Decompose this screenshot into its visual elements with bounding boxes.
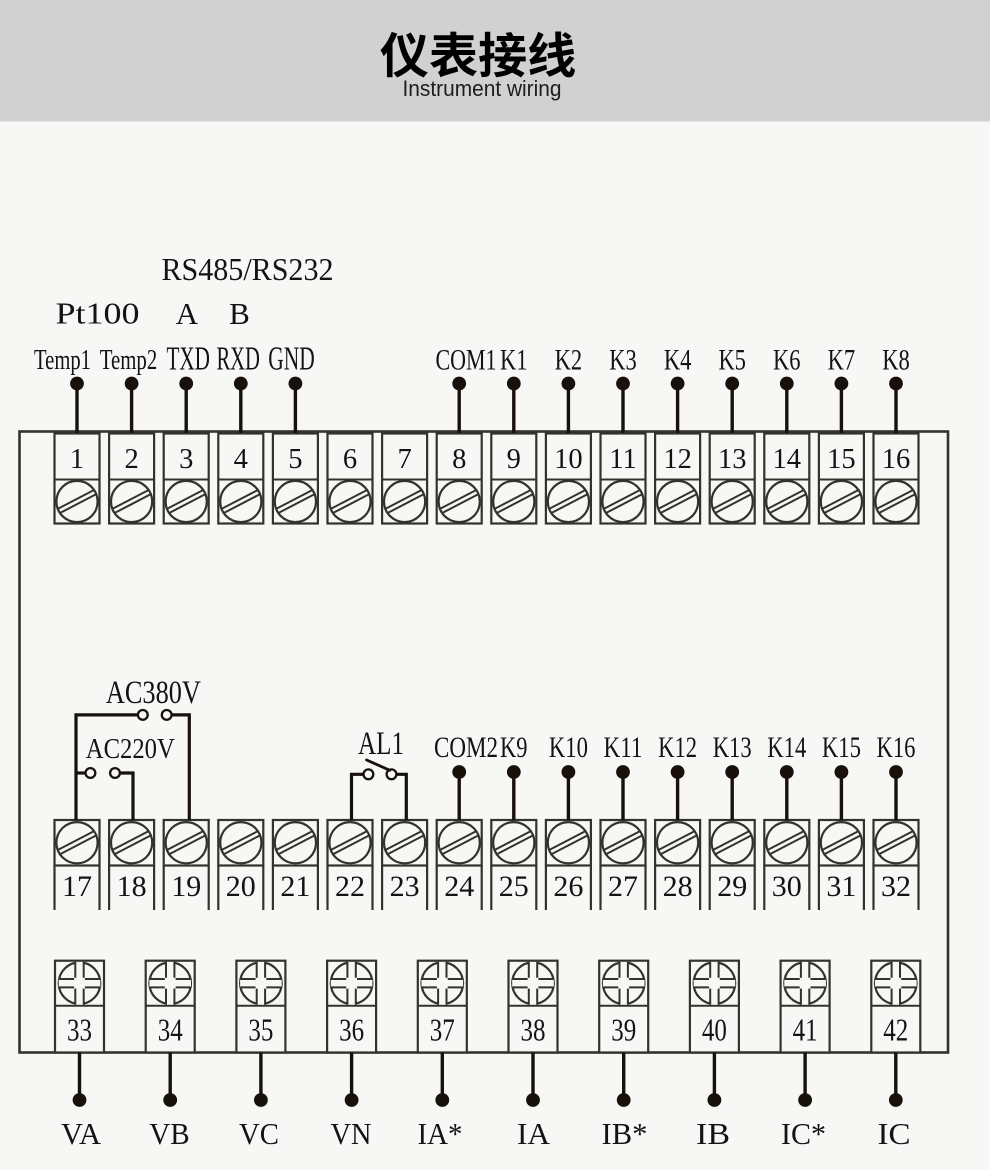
svg-text:37: 37	[430, 1012, 455, 1048]
svg-text:VN: VN	[331, 1116, 372, 1151]
svg-text:GND: GND	[268, 341, 315, 378]
svg-text:10: 10	[554, 444, 583, 475]
svg-text:K9: K9	[500, 732, 528, 764]
svg-text:IB*: IB*	[602, 1116, 648, 1151]
svg-text:K10: K10	[549, 732, 588, 764]
svg-text:13: 13	[718, 444, 747, 475]
svg-text:33: 33	[67, 1012, 92, 1048]
svg-text:20: 20	[226, 870, 256, 903]
svg-text:VA: VA	[61, 1116, 102, 1151]
svg-text:7: 7	[397, 444, 411, 475]
svg-text:IC*: IC*	[781, 1116, 826, 1151]
svg-text:32: 32	[881, 870, 911, 903]
svg-text:38: 38	[521, 1012, 546, 1048]
svg-text:Temp1: Temp1	[34, 345, 91, 376]
svg-text:16: 16	[882, 444, 911, 475]
svg-text:4: 4	[234, 444, 248, 475]
svg-text:28: 28	[663, 870, 693, 903]
svg-text:35: 35	[248, 1012, 273, 1048]
svg-text:19: 19	[171, 870, 201, 903]
svg-text:17: 17	[62, 870, 92, 903]
svg-text:AL1: AL1	[358, 726, 404, 762]
svg-text:12: 12	[663, 444, 692, 475]
svg-text:39: 39	[611, 1012, 636, 1048]
svg-text:11: 11	[609, 444, 636, 475]
svg-text:K14: K14	[767, 732, 806, 764]
svg-text:IB: IB	[696, 1116, 730, 1151]
svg-text:K8: K8	[882, 344, 910, 377]
svg-text:30: 30	[772, 870, 802, 903]
svg-text:18: 18	[117, 870, 147, 903]
svg-text:VB: VB	[149, 1116, 190, 1151]
svg-text:K12: K12	[658, 732, 697, 764]
svg-text:K11: K11	[604, 732, 643, 764]
svg-text:K7: K7	[828, 344, 856, 377]
svg-text:AC220V: AC220V	[86, 733, 175, 765]
svg-text:26: 26	[553, 870, 583, 903]
svg-text:Temp2: Temp2	[100, 345, 158, 376]
svg-text:VC: VC	[239, 1116, 279, 1151]
svg-text:K13: K13	[713, 732, 752, 764]
svg-text:3: 3	[179, 444, 193, 475]
svg-text:B: B	[229, 296, 250, 331]
svg-text:2: 2	[124, 444, 138, 475]
svg-text:36: 36	[339, 1012, 364, 1048]
svg-text:K1: K1	[500, 344, 528, 377]
svg-text:1: 1	[70, 444, 84, 475]
svg-text:K5: K5	[718, 344, 746, 377]
svg-text:A: A	[176, 296, 199, 331]
svg-text:K2: K2	[555, 344, 583, 377]
svg-text:K16: K16	[877, 732, 916, 764]
svg-text:23: 23	[390, 870, 420, 903]
svg-text:31: 31	[826, 870, 856, 903]
svg-text:40: 40	[702, 1012, 727, 1048]
svg-text:COM2: COM2	[434, 732, 498, 764]
svg-text:15: 15	[827, 444, 856, 475]
svg-text:K4: K4	[664, 344, 692, 377]
svg-text:42: 42	[883, 1012, 908, 1048]
svg-text:34: 34	[158, 1012, 183, 1048]
svg-text:41: 41	[793, 1012, 818, 1048]
svg-text:6: 6	[343, 444, 357, 475]
svg-text:5: 5	[288, 444, 302, 475]
svg-text:IC: IC	[878, 1116, 911, 1151]
svg-text:IA: IA	[517, 1116, 551, 1151]
svg-text:IA*: IA*	[418, 1116, 463, 1151]
svg-text:K3: K3	[609, 344, 637, 377]
svg-text:AC380V: AC380V	[106, 675, 201, 711]
svg-text:RS485/RS232: RS485/RS232	[162, 251, 334, 287]
svg-text:25: 25	[499, 870, 529, 903]
svg-text:9: 9	[507, 444, 521, 475]
svg-text:Pt100: Pt100	[56, 296, 140, 331]
svg-text:8: 8	[452, 444, 466, 475]
svg-text:TXD: TXD	[166, 341, 210, 378]
svg-text:14: 14	[773, 444, 802, 475]
svg-text:RXD: RXD	[216, 341, 260, 378]
svg-text:22: 22	[335, 870, 365, 903]
svg-text:27: 27	[608, 870, 638, 903]
svg-text:K6: K6	[773, 344, 801, 377]
svg-text:24: 24	[444, 870, 474, 903]
svg-text:21: 21	[280, 870, 310, 903]
svg-text:K15: K15	[822, 732, 861, 764]
svg-text:COM1: COM1	[436, 344, 497, 377]
svg-text:29: 29	[717, 870, 747, 903]
svg-text:Instrument wiring: Instrument wiring	[403, 76, 562, 101]
